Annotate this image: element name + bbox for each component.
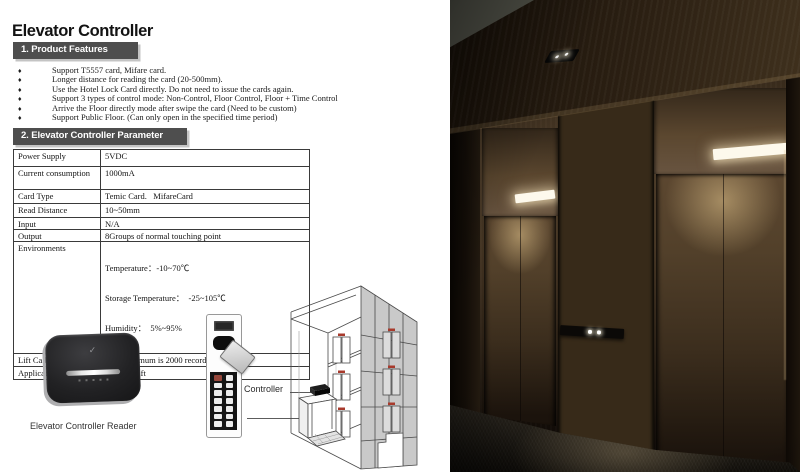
controller-panel-image	[206, 314, 242, 438]
diamond-bullet-icon: ♦	[18, 114, 26, 123]
param-label-cell: Read Distance	[14, 204, 101, 218]
param-label-cell: Power Supply	[14, 150, 101, 167]
table-row: Read Distance 10~50mm	[14, 204, 310, 218]
environment-line: Temperature：-10~70℃	[105, 263, 306, 273]
datasheet-page: Elevator Controller 1. Product Features …	[0, 0, 800, 472]
keypad-key	[214, 390, 222, 396]
table-row: Card Type Temic Card. MifareCard	[14, 190, 310, 204]
keypad-key	[226, 390, 234, 396]
brand-logo-icon: ✓	[88, 346, 96, 355]
panel-keypad	[210, 372, 237, 430]
photo-vignette	[450, 0, 800, 472]
reader-vent-dots	[78, 378, 108, 381]
keypad-key	[214, 375, 222, 381]
table-row: Input N/A	[14, 218, 310, 230]
param-value-cell: 1000mA	[101, 167, 310, 190]
building-wireframe-diagram	[282, 283, 450, 472]
keypad-key	[214, 421, 222, 427]
diamond-bullet-icon: ♦	[18, 86, 26, 95]
keypad-key	[226, 398, 234, 404]
param-label-cell: Output	[14, 230, 101, 242]
param-value-cell: 10~50mm	[101, 204, 310, 218]
feature-text: Support Public Floor. (Can only open in …	[52, 113, 277, 122]
reader-light-slot	[66, 369, 120, 376]
section-heading-parameters: 2. Elevator Controller Parameter	[13, 128, 187, 145]
diamond-bullet-icon: ♦	[18, 105, 26, 114]
reader-caption: Elevator Controller Reader	[30, 421, 170, 431]
feature-item: ♦ Support Public Floor. (Can only open i…	[13, 113, 443, 122]
keypad-key	[214, 414, 222, 420]
environment-line: Storage Temperature： -25~105℃	[105, 293, 306, 303]
param-value-cell: Temic Card. MifareCard	[101, 190, 310, 204]
table-row: Current consumption 1000mA	[14, 167, 310, 190]
keypad-key	[214, 383, 222, 389]
param-value-cell: 5VDC	[101, 150, 310, 167]
param-value-cell: N/A	[101, 218, 310, 230]
param-label-cell: Card Type	[14, 190, 101, 204]
keypad-key	[214, 406, 222, 412]
diamond-bullet-icon: ♦	[18, 76, 26, 85]
elevator-lobby-photo	[450, 0, 800, 472]
feature-list: ♦ Support T5557 card, Mifare card. ♦ Lon…	[13, 66, 443, 122]
keypad-key	[226, 375, 234, 381]
keypad-key	[214, 398, 222, 404]
diamond-bullet-icon: ♦	[18, 67, 26, 76]
diamond-bullet-icon: ♦	[18, 95, 26, 104]
panel-display	[214, 321, 234, 331]
param-label-cell: Current consumption	[14, 167, 101, 190]
controller-label: Controller	[244, 384, 283, 394]
keypad-key	[226, 414, 234, 420]
keypad-key	[226, 406, 234, 412]
section-heading-product-features: 1. Product Features	[13, 42, 138, 59]
table-row: Power Supply 5VDC	[14, 150, 310, 167]
page-title: Elevator Controller	[12, 22, 153, 41]
param-value-cell: 8Groups of normal touching point	[101, 230, 310, 242]
param-label-cell: Input	[14, 218, 101, 230]
table-row: Output 8Groups of normal touching point	[14, 230, 310, 242]
keypad-key	[226, 421, 234, 427]
keypad-key	[226, 383, 234, 389]
reader-device-image: ✓	[45, 332, 141, 403]
